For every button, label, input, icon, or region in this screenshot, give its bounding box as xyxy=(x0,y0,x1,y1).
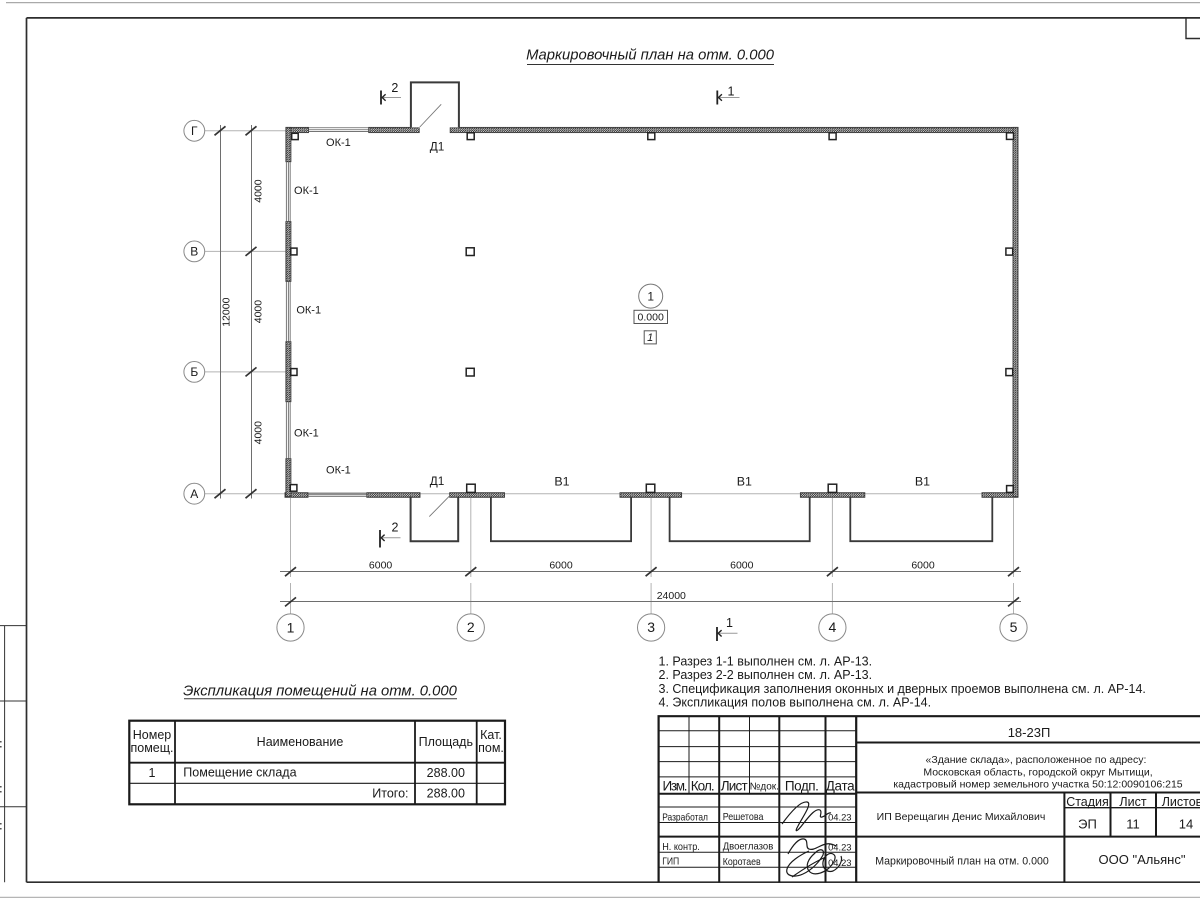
svg-text:Двоеглазов: Двоеглазов xyxy=(723,841,774,852)
svg-text:Маркировочный план на отм. 0.0: Маркировочный план на отм. 0.000 xyxy=(526,48,775,64)
svg-text:В1: В1 xyxy=(737,474,752,488)
svg-text:04.23: 04.23 xyxy=(828,812,851,823)
svg-text:ОК-1: ОК-1 xyxy=(296,305,321,317)
svg-text:Изм.: Изм. xyxy=(663,779,688,794)
svg-text:Кат.: Кат. xyxy=(480,728,502,742)
svg-text:6000: 6000 xyxy=(549,560,573,572)
svg-text:18-23П: 18-23П xyxy=(1008,725,1051,740)
svg-text:1: 1 xyxy=(149,766,156,780)
svg-text:Площадь: Площадь xyxy=(419,735,473,749)
svg-text:ОК-1: ОК-1 xyxy=(326,137,351,149)
svg-text:288.00: 288.00 xyxy=(427,766,465,780)
svg-text:1: 1 xyxy=(728,85,735,99)
svg-text:Подп.: Подп. xyxy=(785,779,819,794)
svg-text:ОК-1: ОК-1 xyxy=(294,427,319,439)
svg-text:1: 1 xyxy=(287,619,295,635)
svg-text:Лист: Лист xyxy=(1119,795,1146,809)
svg-text:04.23: 04.23 xyxy=(828,842,851,853)
svg-text:4: 4 xyxy=(829,619,837,635)
svg-text:12000: 12000 xyxy=(220,297,232,326)
svg-text:ЭП: ЭП xyxy=(1078,817,1097,832)
svg-text:Экспликация помещений на отм.: Экспликация помещений на отм. 0.000 xyxy=(183,684,457,700)
svg-text:Кол.: Кол. xyxy=(691,779,715,794)
svg-text:4000: 4000 xyxy=(252,300,264,324)
svg-text:ОК-1: ОК-1 xyxy=(326,465,351,477)
svg-text:1. Разрез 1-1 выполнен см. л.: 1. Разрез 1-1 выполнен см. л. АР-13. xyxy=(659,654,873,668)
svg-text:Наименование: Наименование xyxy=(257,735,344,749)
svg-text:Лист: Лист xyxy=(721,779,748,794)
svg-text:1: 1 xyxy=(726,616,733,630)
svg-text:Листов: Листов xyxy=(1162,795,1200,809)
svg-text:В1: В1 xyxy=(915,474,930,488)
svg-text:Дата: Дата xyxy=(826,779,855,794)
svg-text:В1: В1 xyxy=(554,474,569,488)
svg-text:0.000: 0.000 xyxy=(638,311,664,323)
svg-text:3: 3 xyxy=(647,619,655,635)
svg-text:11: 11 xyxy=(1126,817,1140,832)
svg-text:кадастровый номер земельного у: кадастровый номер земельного участка 50:… xyxy=(893,779,1182,791)
svg-text:6000: 6000 xyxy=(911,560,935,572)
svg-text:288.00: 288.00 xyxy=(427,787,465,801)
svg-text:4. Экспликация полов выполнена: 4. Экспликация полов выполнена см. л. АР… xyxy=(659,696,932,710)
svg-text:Итого:: Итого: xyxy=(372,787,408,801)
svg-text:04.23: 04.23 xyxy=(828,857,851,868)
svg-text:2. Разрез 2-2 выполнен см. л.: 2. Разрез 2-2 выполнен см. л. АР-13. xyxy=(659,668,873,682)
svg-text:2: 2 xyxy=(392,520,399,534)
svg-text:14: 14 xyxy=(1179,817,1193,832)
svg-text:помещ.: помещ. xyxy=(130,741,173,755)
svg-text:Г: Г xyxy=(191,124,198,138)
svg-text:Московская область, городской: Московская область, городской округ Мыти… xyxy=(923,766,1152,778)
svg-text:Н. контр.: Н. контр. xyxy=(662,842,700,853)
svg-text:6000: 6000 xyxy=(369,560,393,572)
svg-text:Решетова: Решетова xyxy=(723,812,764,823)
svg-text:«Здание склада», расположенное: «Здание склада», расположенное по адресу… xyxy=(926,754,1147,766)
svg-text:В: В xyxy=(190,245,198,259)
svg-text:Д1: Д1 xyxy=(430,474,445,488)
svg-text:1: 1 xyxy=(647,289,654,303)
svg-text:24000: 24000 xyxy=(657,590,686,602)
svg-text:Маркировочный план на отм. 0.0: Маркировочный план на отм. 0.000 xyxy=(875,856,1049,868)
svg-text:ИП Верещагин Денис Михайлович: ИП Верещагин Денис Михайлович xyxy=(877,811,1046,823)
svg-text:ООО "Альянс": ООО "Альянс" xyxy=(1099,852,1186,867)
svg-text:ОК-1: ОК-1 xyxy=(294,185,319,197)
svg-text:Д1: Д1 xyxy=(430,140,445,154)
svg-text:4000: 4000 xyxy=(252,421,264,445)
svg-text:3. Спецификация заполнения око: 3. Спецификация заполнения оконных и две… xyxy=(659,682,1146,696)
svg-text:ГИП: ГИП xyxy=(662,857,679,868)
svg-text:Номер: Номер xyxy=(133,728,172,742)
svg-text:2: 2 xyxy=(467,619,475,635)
svg-text:№док.: №док. xyxy=(750,782,779,793)
svg-text:Разработал: Разработал xyxy=(662,811,708,823)
svg-text:5: 5 xyxy=(1010,619,1018,635)
svg-text:Коротаев: Коротаев xyxy=(723,857,761,868)
svg-text:4000: 4000 xyxy=(252,179,264,203)
svg-text:А: А xyxy=(190,487,198,501)
svg-text:6000: 6000 xyxy=(730,560,754,572)
svg-text:Стадия: Стадия xyxy=(1066,795,1109,809)
svg-text:2: 2 xyxy=(391,81,398,95)
svg-text:1: 1 xyxy=(647,332,653,344)
svg-text:Помещение склада: Помещение склада xyxy=(183,766,296,780)
svg-text:пом.: пом. xyxy=(478,741,504,755)
svg-text:Б: Б xyxy=(190,365,198,379)
